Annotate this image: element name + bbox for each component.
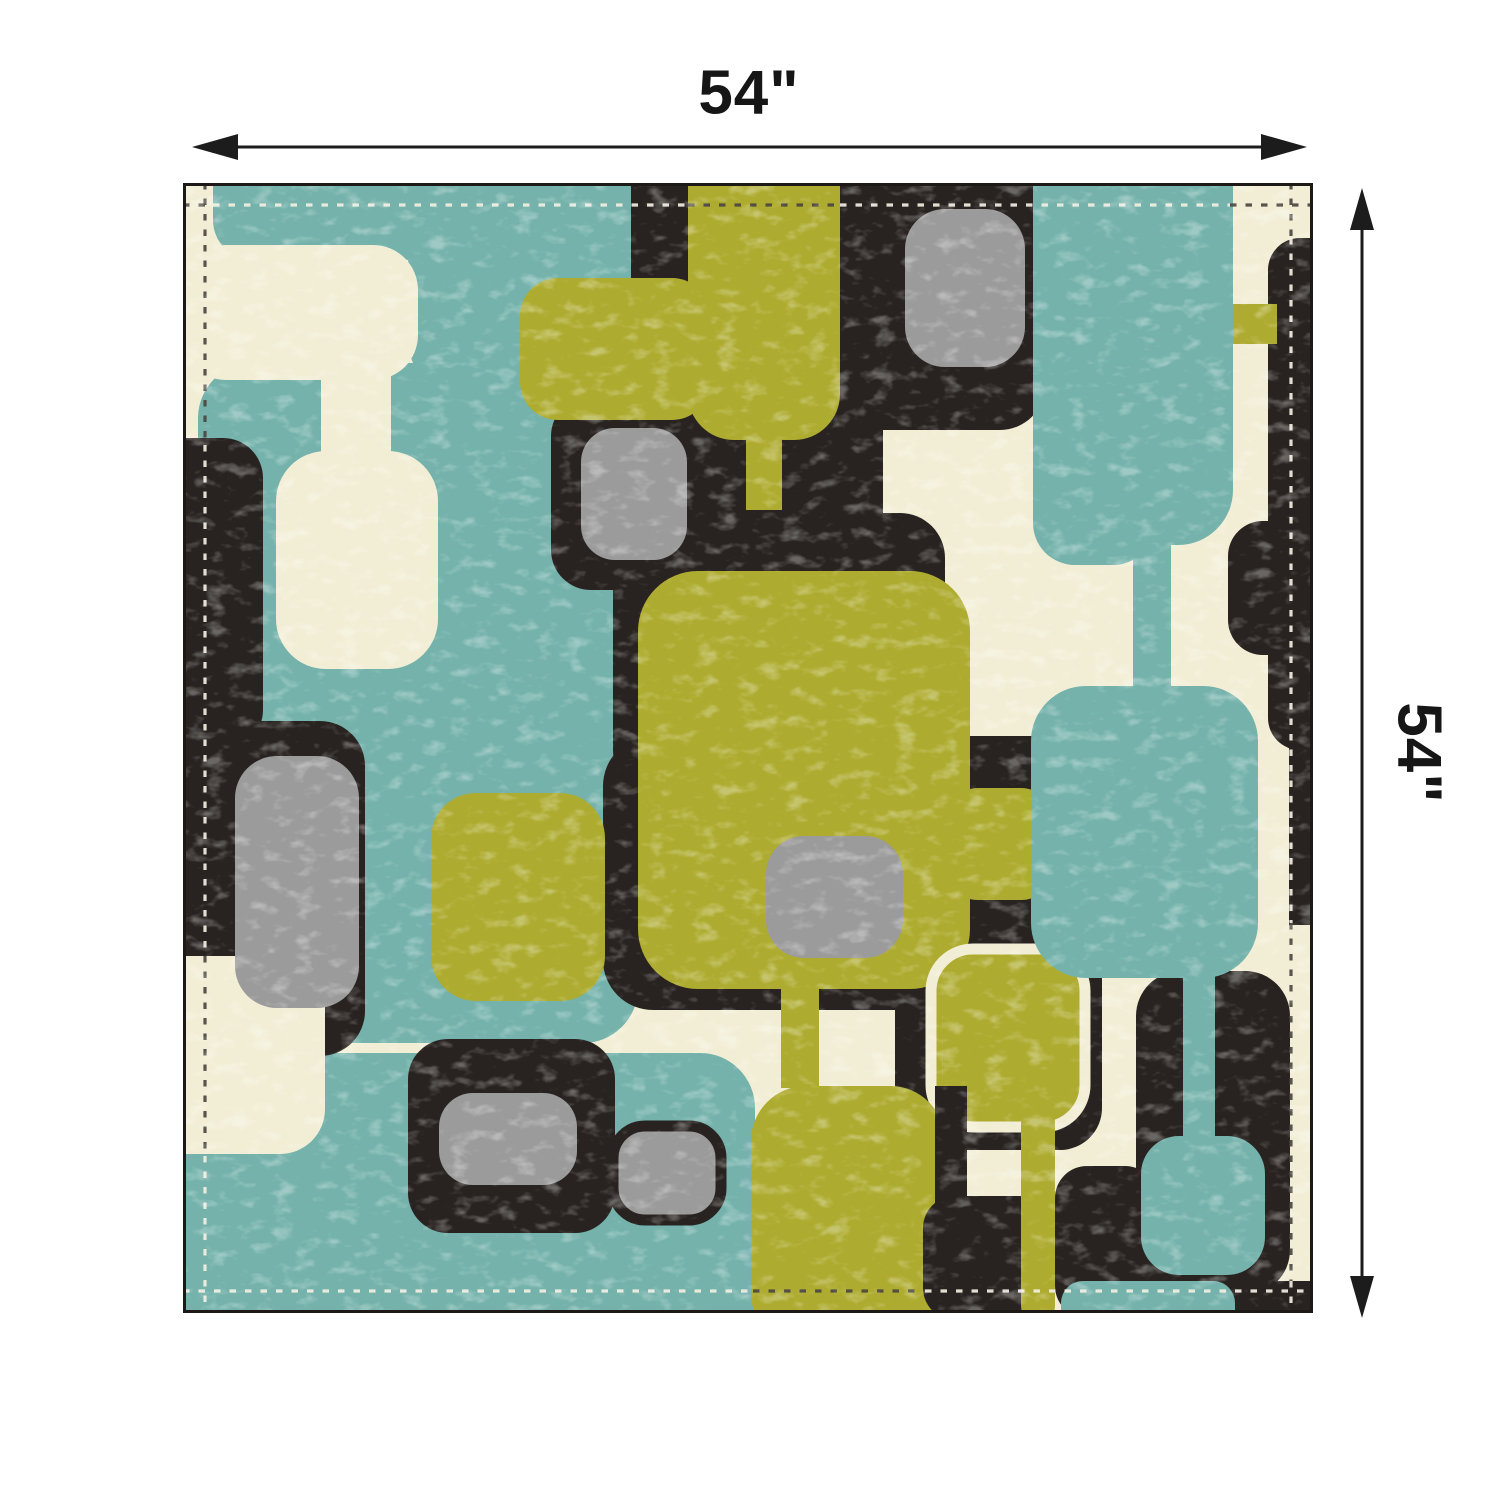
width-dimension-label: 54" <box>698 58 799 129</box>
diagram-canvas: 54" 54" <box>0 0 1500 1500</box>
fabric-pattern <box>183 183 1313 1313</box>
fabric-swatch <box>183 183 1313 1313</box>
height-dimension-label: 54" <box>1384 702 1455 803</box>
